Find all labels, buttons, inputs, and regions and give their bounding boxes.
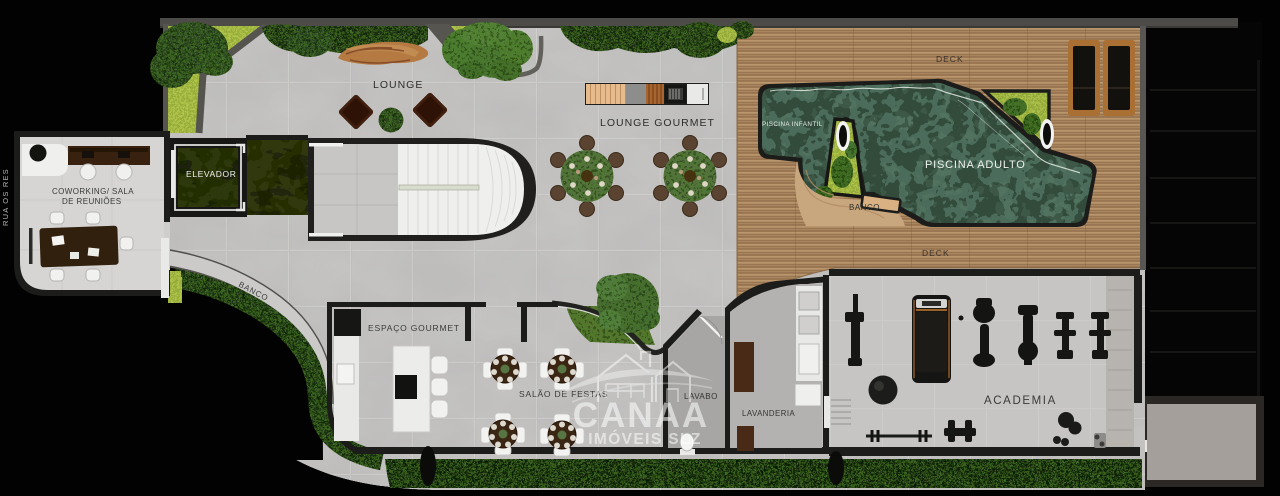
svg-text:RUA OS RES: RUA OS RES: [1, 168, 10, 226]
svg-text:LOUNGE: LOUNGE: [373, 79, 423, 91]
svg-text:CANAA: CANAA: [573, 396, 709, 435]
svg-text:ESPAÇO GOURMET: ESPAÇO GOURMET: [368, 323, 460, 333]
svg-text:IMÓVEIS SLZ: IMÓVEIS SLZ: [588, 430, 702, 448]
svg-text:ELEVADOR: ELEVADOR: [186, 169, 236, 179]
svg-text:LOUNGE GOURMET: LOUNGE GOURMET: [600, 117, 715, 129]
svg-text:DECK: DECK: [936, 54, 964, 64]
svg-text:PISCINA INFANTIL: PISCINA INFANTIL: [762, 121, 823, 128]
svg-text:ACADEMIA: ACADEMIA: [984, 395, 1057, 407]
svg-text:LAVANDERIA: LAVANDERIA: [742, 409, 796, 418]
svg-text:DE REUNIÕES: DE REUNIÕES: [62, 197, 122, 206]
svg-text:COWORKING/ SALA: COWORKING/ SALA: [52, 187, 134, 196]
svg-text:DECK: DECK: [922, 248, 950, 258]
svg-text:BANCO: BANCO: [849, 203, 880, 212]
svg-text:PISCINA ADULTO: PISCINA ADULTO: [925, 159, 1026, 171]
